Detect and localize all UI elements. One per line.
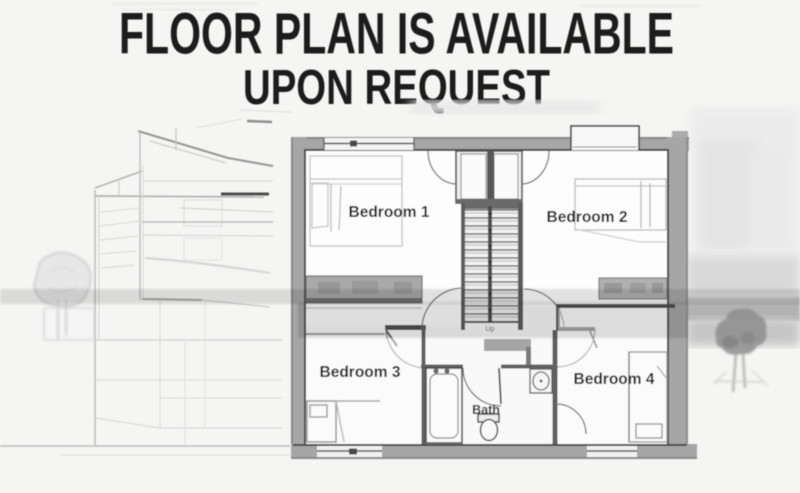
svg-text:FLOOR PLAN IS AVAILABLE: FLOOR PLAN IS AVAILABLE (119, 2, 674, 67)
svg-text:Bedroom 4: Bedroom 4 (574, 371, 655, 388)
svg-text:Bedroom 1: Bedroom 1 (349, 204, 430, 221)
svg-text:Bath: Bath (472, 403, 500, 417)
svg-text:Bedroom 3: Bedroom 3 (320, 364, 401, 381)
svg-text:Bedroom 2: Bedroom 2 (547, 209, 628, 226)
